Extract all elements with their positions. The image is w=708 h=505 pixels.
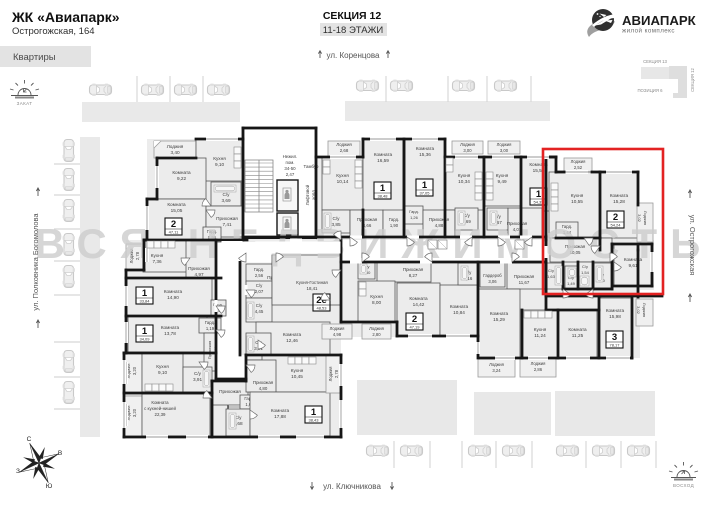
svg-text:15,29: 15,29 [493,317,505,322]
svg-text:С/у: С/у [222,192,230,197]
svg-text:3: 3 [612,332,617,343]
svg-text:Прихожая: Прихожая [403,267,424,272]
svg-text:Комната: Комната [490,311,509,316]
svg-text:Кухня: Кухня [213,156,226,161]
svg-text:ПОЗИЦИЯ 6: ПОЗИЦИЯ 6 [637,88,663,93]
svg-text:Гардероб: Гардероб [483,273,502,278]
svg-text:ул. Коренцова: ул. Коренцова [327,51,380,60]
svg-text:33,84: 33,84 [139,298,150,303]
svg-text:3,69: 3,69 [221,198,231,203]
svg-text:Кухня: Кухня [496,173,509,178]
svg-text:15,98: 15,98 [609,314,621,319]
svg-text:15,28: 15,28 [613,199,625,204]
svg-text:Лоджия: Лоджия [328,367,333,382]
svg-text:10,84: 10,84 [453,310,465,315]
svg-text:37,05: 37,05 [419,190,430,195]
svg-text:1: 1 [311,407,317,418]
svg-text:11,24: 11,24 [534,333,546,338]
svg-text:Лоджия: Лоджия [571,159,586,164]
svg-text:3,91: 3,91 [193,377,203,382]
svg-text:2,56: 2,56 [255,273,264,278]
svg-text:Прихожая: Прихожая [207,341,212,360]
svg-text:4,98: 4,98 [333,332,342,337]
svg-text:Кухня: Кухня [458,173,471,178]
svg-text:ул. Ключникова: ул. Ключникова [323,482,381,491]
svg-text:С/у: С/у [256,283,263,288]
svg-text:10,14: 10,14 [337,179,349,184]
svg-text:22,39: 22,39 [155,412,167,417]
svg-text:9,10: 9,10 [215,162,225,167]
svg-text:1,54: 1,54 [581,270,590,275]
svg-text:Лифтовой: Лифтовой [305,184,310,205]
svg-text:11,25: 11,25 [572,333,584,338]
svg-text:9,22: 9,22 [177,176,187,181]
svg-text:жилой комплекс: жилой комплекс [622,28,675,35]
svg-text:1: 1 [142,326,148,337]
svg-text:1,49: 1,49 [567,281,576,286]
svg-text:3,20: 3,20 [132,366,137,375]
svg-text:14,90: 14,90 [167,295,179,300]
svg-text:Лоджия: Лоджия [642,303,647,317]
svg-text:С/у: С/у [194,371,202,376]
svg-text:8,00: 8,00 [372,300,382,305]
svg-text:4,97: 4,97 [194,272,204,277]
svg-text:17,88: 17,88 [274,414,286,419]
svg-text:Острогожская, 164: Острогожская, 164 [12,26,95,37]
svg-text:ВСЯ НЕДВИЖИМОСТЬ: ВСЯ НЕДВИЖИМОСТЬ [35,220,708,267]
svg-text:1: 1 [142,288,148,299]
svg-text:Комната: Комната [161,325,180,330]
svg-text:Гард.: Гард. [205,320,215,325]
svg-text:Лоджия: Лоджия [497,142,512,147]
svg-text:15,05: 15,05 [171,208,183,213]
svg-text:34-50: 34-50 [284,166,296,171]
svg-text:3,00: 3,00 [500,148,509,153]
svg-text:В: В [58,450,62,457]
svg-text:14,42: 14,42 [413,302,425,307]
svg-text:Комната: Комната [167,202,186,207]
svg-text:Прихожая: Прихожая [514,274,535,279]
svg-text:48,53: 48,53 [316,305,327,310]
svg-text:9,10: 9,10 [158,370,168,375]
svg-text:ул. Острогожская: ул. Острогожская [688,215,697,276]
svg-text:Кухня: Кухня [534,327,547,332]
svg-text:Кухня: Кухня [291,368,304,373]
svg-text:47,19: 47,19 [409,324,420,329]
svg-text:Комната: Комната [409,296,428,301]
svg-text:16,59: 16,59 [377,158,389,163]
svg-text:Лоджия: Лоджия [531,361,546,366]
svg-text:СЕКЦИЯ 12: СЕКЦИЯ 12 [323,10,382,22]
svg-text:Комната: Комната [610,193,629,198]
svg-text:Комната: Комната [271,408,290,413]
svg-text:ЖК «Авиапарк»: ЖК «Авиапарк» [11,9,120,25]
svg-text:Комната: Комната [283,332,302,337]
svg-text:15,36: 15,36 [419,152,431,157]
svg-text:Квартиры: Квартиры [13,52,56,63]
svg-text:Комната: Комната [151,400,169,405]
svg-text:3,00: 3,00 [463,148,472,153]
svg-text:С/у: С/у [256,303,263,308]
svg-text:2,78: 2,78 [334,369,339,378]
svg-text:1,63: 1,63 [547,274,556,279]
svg-text:8,27: 8,27 [409,273,418,278]
svg-text:2,07: 2,07 [255,289,264,294]
svg-text:2,80: 2,80 [372,332,381,337]
svg-text:38,43: 38,43 [308,417,319,422]
svg-text:2,47: 2,47 [286,172,295,177]
svg-text:ВОСХОД: ВОСХОД [673,483,694,488]
svg-text:Гард.: Гард. [254,267,264,272]
svg-text:1,19: 1,19 [206,326,215,331]
svg-text:Комната: Комната [450,304,469,309]
svg-text:ул. Полковника Богомолова: ул. Полковника Богомолова [31,213,40,311]
svg-text:11-18 ЭТАЖИ: 11-18 ЭТАЖИ [323,25,384,36]
svg-text:Кухня: Кухня [571,193,584,198]
svg-text:10,55: 10,55 [571,199,583,204]
svg-text:Комната: Комната [374,152,393,157]
svg-text:2,86: 2,86 [534,367,543,372]
svg-text:3,06: 3,06 [488,279,497,284]
svg-text:с кухней-нишей: с кухней-нишей [144,406,176,411]
svg-text:СЕКЦИЯ 12: СЕКЦИЯ 12 [690,67,695,91]
svg-text:78,17: 78,17 [609,342,620,347]
svg-text:Прихожая: Прихожая [253,380,274,385]
svg-text:С/у: С/у [548,268,554,273]
svg-text:пом.: пом. [285,160,294,165]
svg-text:9,49: 9,49 [497,179,507,184]
svg-text:3,20: 3,20 [132,408,137,417]
svg-text:Лоджия: Лоджия [336,142,352,147]
svg-text:Лоджия: Лоджия [167,144,184,149]
svg-text:Комната: Комната [172,170,191,175]
svg-text:38,48: 38,48 [377,193,388,198]
svg-text:Лоджия: Лоджия [489,362,504,367]
svg-text:10,45: 10,45 [291,374,303,379]
svg-text:3,02: 3,02 [636,306,641,315]
svg-text:СЕКЦИЯ 13: СЕКЦИЯ 13 [643,59,667,64]
svg-text:Кухня-Гостиная: Кухня-Гостиная [296,280,328,285]
svg-text:2,68: 2,68 [340,148,349,153]
svg-text:Лоджия: Лоджия [369,326,384,331]
svg-text:10,34: 10,34 [458,179,470,184]
svg-text:С: С [27,436,32,443]
svg-text:Прихожая: Прихожая [219,389,241,394]
svg-text:1: 1 [422,180,428,191]
svg-text:Лоджия: Лоджия [330,326,345,331]
svg-text:Ю: Ю [46,483,53,490]
svg-text:13,78: 13,78 [164,331,176,336]
svg-text:ЗАКАТ: ЗАКАТ [17,101,33,106]
svg-text:12,46: 12,46 [286,338,298,343]
svg-text:Кухня: Кухня [370,294,383,299]
svg-text:2: 2 [412,314,417,325]
svg-text:Гард.: Гард. [409,209,419,214]
svg-text:Комната: Комната [164,289,183,294]
svg-text:Кухня: Кухня [156,364,169,369]
svg-text:34,09: 34,09 [139,336,150,341]
svg-text:1: 1 [536,189,542,200]
svg-text:З: З [16,468,20,475]
svg-text:Комната: Комната [568,327,587,332]
svg-text:АВИАПАРК: АВИАПАРК [622,13,697,28]
svg-text:4,45: 4,45 [255,309,264,314]
svg-text:11,67: 11,67 [519,280,530,285]
svg-text:2,52: 2,52 [574,165,583,170]
svg-text:Нежил.: Нежил. [283,154,298,159]
svg-text:4,80: 4,80 [259,386,268,391]
svg-text:Комната: Комната [416,146,435,151]
svg-text:Лоджия: Лоджия [460,142,475,147]
svg-text:18,41: 18,41 [307,286,319,291]
svg-text:3,24: 3,24 [492,368,501,373]
svg-text:Комната: Комната [606,308,625,313]
svg-text:Кухня: Кухня [336,173,349,178]
svg-text:1: 1 [380,183,386,194]
svg-text:3,40: 3,40 [170,150,180,155]
